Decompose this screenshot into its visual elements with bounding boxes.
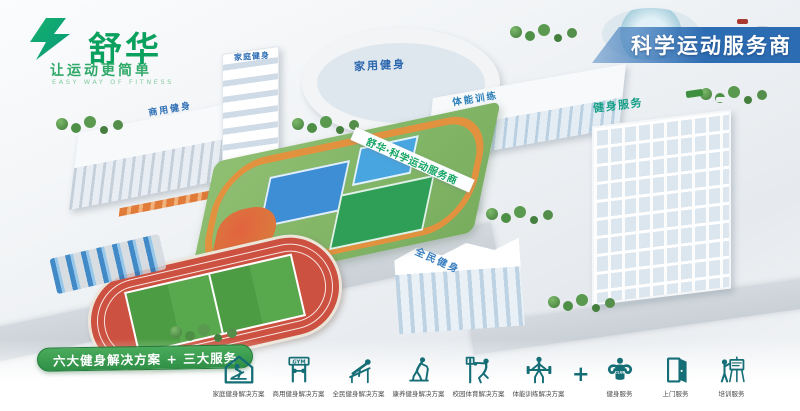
services-row: CLUB 健身服务 上门服务 培训服务 (596, 355, 755, 398)
solution-label: 全民健身解决方案 (332, 388, 385, 398)
ribbon-banner: 科学运动服务商 (592, 27, 800, 63)
service-doorstep: 上门服务 (652, 355, 699, 398)
service-fitness: CLUB 健身服务 (596, 355, 643, 398)
solution-commercial-fitness: GYM 商用健身解决方案 (272, 355, 325, 398)
solutions-banner-text: 六大健身解决方案 + 三大服务 (53, 347, 237, 369)
building-lower-public (393, 236, 525, 335)
tree-cluster (486, 208, 498, 220)
solution-home-fitness: 家庭健身解决方案 (212, 355, 265, 398)
tree-cluster (56, 118, 68, 130)
door-icon (661, 355, 691, 385)
ribbon-text: 科学运动服务商 (631, 30, 792, 60)
roof-sign-home: 家用健身 (354, 56, 407, 75)
solution-label: 康养健身解决方案 (392, 388, 445, 398)
plus-sign: + (572, 362, 590, 386)
club-badge-text: CLUB (614, 371, 625, 375)
gym-icon: GYM (284, 355, 314, 385)
service-label: 培训服务 (708, 388, 755, 398)
stretch-bench-icon (344, 355, 374, 385)
poster: 商用健身 家庭健身 家用健身 体能训练 健身服务 舒华·科学运动服务商 全民健身… (0, 0, 800, 411)
solution-public-fitness: 全民健身解决方案 (332, 355, 385, 398)
solution-label: 商用健身解决方案 (272, 388, 325, 398)
solution-physical-training: 体能训练解决方案 (512, 355, 565, 398)
solutions-row: 家庭健身解决方案 GYM 商用健身解决方案 全民健身解决方案 (212, 355, 565, 398)
gym-sign-text: GYM (292, 359, 305, 365)
brand-slogan-en: EASY WAY OF FITNESS (52, 78, 174, 86)
barbell-lifter-icon (524, 355, 554, 385)
solution-label: 家庭健身解决方案 (212, 388, 265, 398)
service-label: 上门服务 (652, 388, 699, 398)
tree-cluster (510, 26, 522, 38)
service-label: 健身服务 (596, 388, 643, 398)
brand-slogan: 让运动更简单 (50, 60, 152, 80)
car (737, 19, 748, 24)
solution-label: 体能训练解决方案 (512, 388, 565, 398)
service-training: 培训服务 (708, 355, 755, 398)
shuhua-logo-icon (26, 16, 78, 62)
tree-cluster (548, 296, 560, 308)
coach-whiteboard-icon (717, 355, 747, 385)
solution-wellness-fitness: 康养健身解决方案 (392, 355, 445, 398)
tree-cluster (170, 326, 182, 338)
building-lattice-service (592, 109, 731, 305)
exercise-bike-icon (404, 355, 434, 385)
solution-campus-sports: 校园体育解决方案 (452, 355, 505, 398)
home-fitness-icon (224, 355, 254, 385)
tree-cluster (292, 118, 304, 130)
car (716, 97, 727, 102)
basketball-hoop-icon (464, 355, 494, 385)
muscle-icon: CLUB (605, 355, 635, 385)
solution-label: 校园体育解决方案 (452, 388, 505, 398)
